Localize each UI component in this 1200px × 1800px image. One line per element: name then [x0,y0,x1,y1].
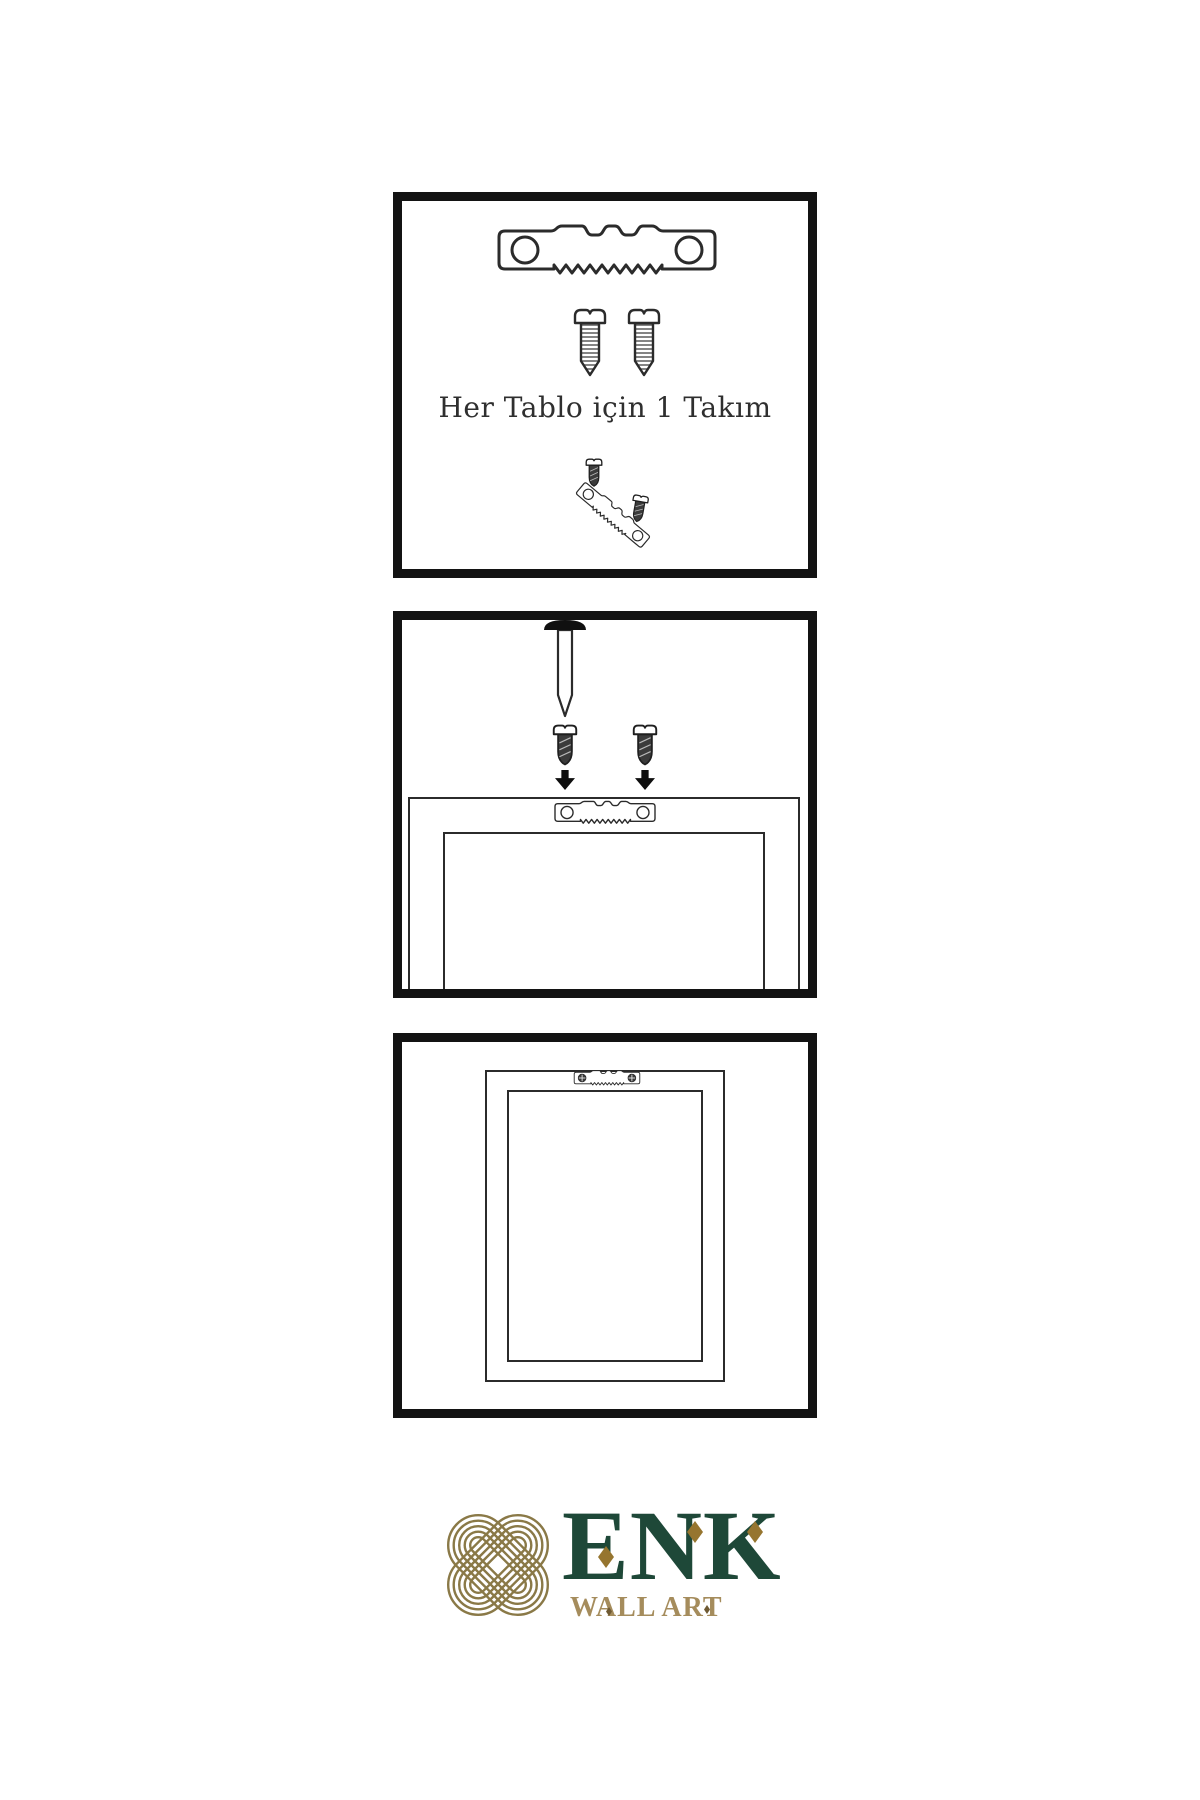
screw-icon [573,307,607,379]
down-arrow-icon [634,770,656,790]
step-1-panel: Her Tablo için 1 Takım [393,192,817,578]
sawtooth-hanger-installed-icon [573,1068,641,1088]
enk-knot-icon [438,1502,558,1628]
hanger-assembly-group [575,454,665,554]
step-3-panel [393,1033,817,1418]
step-2-panel [393,611,817,998]
wall-nail-icon [543,619,587,719]
step-1-caption: Her Tablo için 1 Takım [402,391,808,424]
brand-tagline: WALL ART [570,1594,723,1622]
frame-back-inner-outline [443,832,765,989]
screw-icon [552,723,578,768]
frame-back-inner-outline [507,1090,703,1362]
down-arrow-icon [554,770,576,790]
brand-name: ENK [562,1496,782,1596]
sawtooth-hanger-icon [495,223,719,277]
instruction-sheet: Her Tablo için 1 Takım ENK WALL ART [0,0,1200,1800]
screw-icon [627,307,661,379]
screw-icon [628,493,651,526]
sawtooth-hanger-icon [553,800,657,825]
screw-icon [632,723,658,768]
